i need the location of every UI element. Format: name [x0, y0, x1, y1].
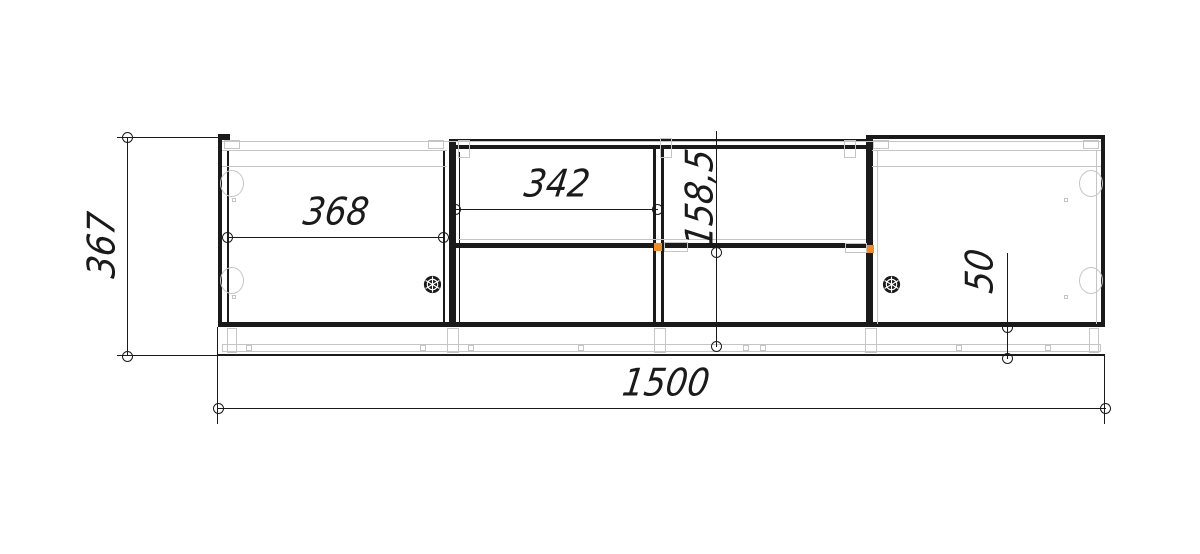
plinth-leg	[1089, 328, 1099, 353]
hinge-icon	[220, 170, 244, 197]
plinth-screw	[956, 345, 962, 351]
dim-endpoint	[711, 341, 722, 352]
hinge-icon	[1079, 170, 1103, 197]
right-door-top-edge	[866, 135, 1105, 139]
plinth-bottom-line	[218, 354, 1105, 356]
left-door-rail-line	[222, 166, 447, 167]
dim-endpoint	[222, 232, 233, 243]
dim-overall-width-label: 1500	[613, 362, 719, 405]
plinth-leg	[654, 328, 666, 353]
dim-endpoint	[122, 351, 133, 362]
dim-plinth-line	[1007, 253, 1008, 359]
plinth-leg	[227, 328, 237, 353]
door-knob-icon	[423, 275, 442, 294]
plinth-leg	[447, 328, 459, 353]
dim-endpoint	[1002, 353, 1013, 364]
dim-endpoint	[438, 232, 449, 243]
top-fitting	[224, 140, 240, 149]
plinth-screw	[420, 345, 426, 351]
hinge-screw	[1064, 295, 1068, 299]
right-side-panel	[1101, 135, 1105, 326]
center-divider-right-face	[661, 149, 664, 324]
dim-width-line	[218, 408, 1106, 409]
drawing-canvas[interactable]: 367 1500 368 342 158,5 50	[0, 0, 1200, 554]
dim-middle-opening-line	[455, 209, 658, 210]
hinge-icon	[220, 267, 244, 294]
left-door-top-line	[222, 150, 447, 151]
top-fitting	[1083, 140, 1099, 149]
right-door-inner-left-edge	[877, 150, 878, 324]
connector-body	[845, 243, 867, 253]
hinge-icon	[1079, 267, 1103, 294]
shelf-top-line	[458, 239, 866, 240]
dim-plinth-height-label: 50	[959, 218, 1002, 324]
selected-connector[interactable]	[654, 243, 662, 251]
dim-endpoint	[652, 204, 663, 215]
top-fitting	[660, 138, 672, 158]
plinth-screw	[743, 345, 749, 351]
right-door-top-line	[872, 150, 1101, 151]
plinth-screw	[468, 345, 474, 351]
dim-left-door-width-label: 368	[283, 191, 389, 234]
dim-endpoint	[450, 204, 461, 215]
left-divider-panel	[449, 139, 456, 324]
dim-endpoint	[1100, 403, 1111, 414]
plinth-leg	[865, 328, 877, 353]
top-fitting	[458, 140, 470, 158]
plinth-screw	[246, 345, 252, 351]
plinth-screw	[1045, 345, 1051, 351]
plinth-screw	[578, 345, 584, 351]
center-divider-left-face	[653, 149, 656, 324]
dim-shelf-offset-label: 158,5	[679, 140, 722, 256]
top-fitting	[428, 140, 444, 149]
dim-overall-height-label: 367	[81, 192, 124, 298]
selected-connector[interactable]	[867, 245, 874, 253]
middle-section-left-edge	[459, 152, 460, 322]
dim-endpoint	[213, 403, 224, 414]
top-fitting	[873, 140, 889, 149]
dim-height-line	[127, 137, 128, 356]
top-fitting	[844, 140, 856, 158]
dim-middle-opening-width-label: 342	[504, 163, 610, 206]
dim-endpoint	[122, 132, 133, 143]
door-knob-icon	[882, 275, 901, 294]
dim-endpoint	[1002, 322, 1013, 333]
left-side-panel	[218, 136, 222, 326]
hinge-screw	[232, 198, 236, 202]
right-door-rail-line	[872, 166, 1101, 167]
dim-left-door-line	[227, 237, 444, 238]
hinge-screw	[232, 295, 236, 299]
plinth-screw	[760, 345, 766, 351]
hinge-screw	[1064, 198, 1068, 202]
dim-width-ext-right	[1104, 356, 1105, 424]
